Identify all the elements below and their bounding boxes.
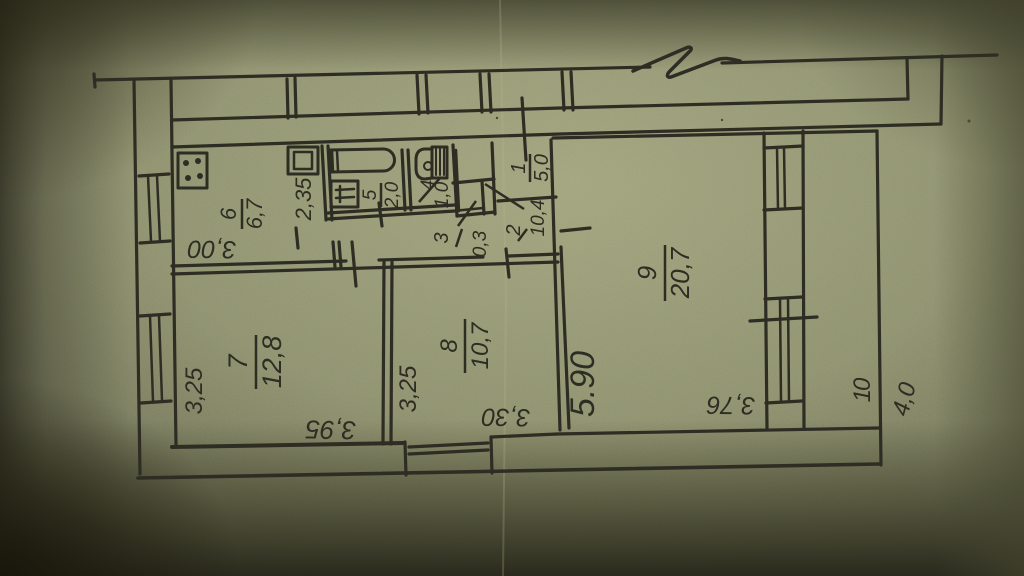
svg-text:10: 10 [849, 377, 876, 402]
svg-text:10,4: 10,4 [528, 200, 549, 237]
svg-text:2,0: 2,0 [382, 181, 403, 209]
svg-text:7: 7 [223, 354, 253, 370]
svg-text:10,7: 10,7 [467, 321, 494, 369]
svg-text:0,3: 0,3 [470, 230, 491, 257]
svg-text:8: 8 [436, 339, 463, 353]
svg-text:20,7: 20,7 [665, 246, 695, 299]
svg-text:3,30: 3,30 [481, 403, 530, 432]
svg-text:9: 9 [632, 266, 662, 280]
svg-text:3: 3 [431, 232, 453, 243]
svg-text:2,35: 2,35 [291, 177, 316, 222]
svg-text:3,25: 3,25 [395, 365, 422, 412]
svg-text:12,8: 12,8 [257, 336, 287, 389]
svg-text:6,7: 6,7 [242, 198, 267, 229]
svg-text:3,25: 3,25 [181, 367, 208, 414]
svg-text:3,95: 3,95 [305, 415, 357, 446]
svg-text:1: 1 [508, 162, 530, 173]
svg-text:3,00: 3,00 [187, 235, 236, 264]
svg-text:5.90: 5.90 [564, 351, 602, 417]
svg-text:1,0: 1,0 [432, 181, 453, 208]
svg-text:6: 6 [216, 207, 241, 220]
svg-text:5,0: 5,0 [531, 154, 553, 182]
svg-text:3,76: 3,76 [706, 391, 755, 420]
svg-text:5: 5 [360, 189, 381, 200]
